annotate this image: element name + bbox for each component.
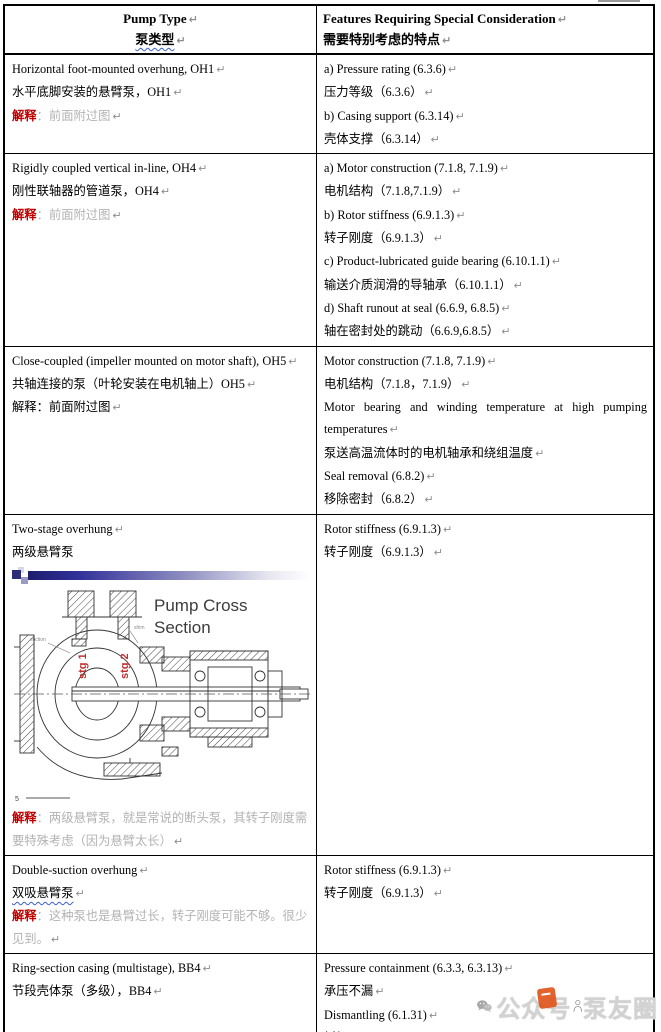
line-text: 水平底脚安装的悬臂泵，OH1 [12, 85, 171, 99]
paragraph-mark-icon: ↵ [112, 110, 121, 123]
text-line: c) Product-lubricated guide bearing (6.1… [324, 250, 647, 273]
text-line: 电机结构（7.1.8，7.1.9）↵ [324, 373, 647, 396]
paragraph-mark-icon: ↵ [115, 523, 124, 536]
text-line: 泵送高温流体时的电机轴承和绕组温度↵ [324, 442, 647, 465]
text-line: a) Pressure rating (6.3.6)↵ [324, 58, 647, 81]
line-text: 两级悬臂泵 [12, 545, 74, 559]
line-text: a) Motor construction (7.1.8, 7.1.9) [324, 161, 498, 175]
line-text: 双吸悬臂泵 [12, 886, 74, 900]
gradient-bar [28, 571, 310, 580]
text-line: 解释：前面附过图↵ [12, 105, 310, 128]
svg-text:suction: suction [30, 637, 46, 643]
text-line: Rotor stiffness (6.9.1.3)↵ [324, 518, 647, 541]
paragraph-mark-icon: ↵ [429, 1009, 438, 1022]
text-line: a) Motor construction (7.1.8, 7.1.9)↵ [324, 157, 647, 180]
text-line: Two-stage overhung↵ [12, 518, 310, 541]
pump-type-cell: Horizontal foot-mounted overhung, OH1↵水平… [5, 55, 317, 153]
text-line: 拆解↵ [324, 1027, 647, 1032]
line-text: 电机结构（7.1.8,7.1.9） [324, 184, 450, 198]
paragraph-mark-icon: ↵ [452, 185, 461, 198]
paragraph-mark-icon: ↵ [434, 546, 443, 559]
figure-area: suction shim stg 1 stg 2 5 Pump Cross Se… [12, 587, 312, 805]
line-text: 移除密封（6.8.2） [324, 492, 422, 506]
paragraph-mark-icon: ↵ [500, 162, 509, 175]
paragraph-mark-icon: ↵ [247, 378, 256, 391]
line-text: 共轴连接的泵（叶轮安装在电机轴上）OH5 [12, 377, 245, 391]
text-line: Seal removal (6.8.2)↵ [324, 465, 647, 488]
pump-features-table: Pump Type↵ 泵类型↵ Features Requiring Speci… [3, 4, 655, 1032]
paragraph-mark-icon: ↵ [504, 962, 513, 975]
line-text: 刚性联轴器的管道泵，OH4 [12, 184, 159, 198]
line-text: Ring-section casing (multistage), BB4 [12, 961, 201, 975]
paragraph-mark-icon: ↵ [424, 86, 433, 99]
line-text: 泵送高温流体时的电机轴承和绕组温度 [324, 446, 533, 460]
document-page: Pump Type↵ 泵类型↵ Features Requiring Speci… [0, 0, 661, 1032]
features-cell: a) Motor construction (7.1.8, 7.1.9)↵电机结… [317, 154, 653, 345]
line-text: Two-stage overhung [12, 522, 113, 536]
pump-type-cell: Rigidly coupled vertical in-line, OH4↵刚性… [5, 154, 317, 345]
features-cell: Pressure containment (6.3.3, 6.3.13)↵承压不… [317, 954, 653, 1032]
paragraph-mark-icon: ↵ [514, 279, 523, 292]
pump-figure: suction shim stg 1 stg 2 5 Pump Cross Se… [12, 567, 312, 805]
paragraph-mark-icon: ↵ [443, 864, 452, 877]
text-line: 水平底脚安装的悬臂泵，OH1↵ [12, 81, 310, 104]
text-line: 输送介质润滑的导轴承（6.10.1.1）↵ [324, 274, 647, 297]
line-text: Dismantling (6.1.31) [324, 1008, 427, 1022]
line-text: Rigidly coupled vertical in-line, OH4 [12, 161, 196, 175]
paragraph-mark-icon: ↵ [434, 887, 443, 900]
text-line: Motor bearing and winding temperature at… [324, 396, 647, 442]
explanation-label: 解释 [12, 811, 37, 825]
header-pump-type-en: Pump Type↵ [11, 9, 310, 30]
paragraph-mark-icon: ↵ [501, 325, 510, 338]
stage-2-label: stg 2 [119, 654, 131, 680]
paragraph-mark-icon: ↵ [375, 985, 384, 998]
paragraph-mark-icon: ↵ [426, 470, 435, 483]
table-row: Horizontal foot-mounted overhung, OH1↵水平… [5, 55, 653, 154]
line-text: d) Shaft runout at seal (6.6.9, 6.8.5) [324, 301, 499, 315]
line-text: Pressure containment (6.3.3, 6.3.13) [324, 961, 502, 975]
header-features-en: Features Requiring Special Consideration… [323, 9, 647, 30]
paragraph-mark-icon: ↵ [112, 209, 121, 222]
text-line: 解释：这种泵也是悬臂过长，转子刚度可能不够。很少见到。↵ [12, 905, 310, 951]
pump-type-cell: Close-coupled (impeller mounted on motor… [5, 347, 317, 514]
line-text: c) Product-lubricated guide bearing (6.1… [324, 254, 550, 268]
table-row: Two-stage overhung↵两级悬臂泵 [5, 515, 653, 856]
paragraph-mark-icon: ↵ [176, 34, 185, 47]
features-cell: Rotor stiffness (6.9.1.3)↵转子刚度（6.9.1.3）↵ [317, 515, 653, 855]
page-edge-mark [598, 0, 640, 2]
text-line: 轴在密封处的跳动（6.6.9,6.8.5）↵ [324, 320, 647, 343]
pump-type-cell: Double-suction overhung↵双吸悬臂泵↵解释：这种泵也是悬臂… [5, 856, 317, 953]
explanation-label: 解释 [12, 208, 37, 222]
text-line: 刚性联轴器的管道泵，OH4↵ [12, 180, 310, 203]
text-line: 解释：两级悬臂泵，就是常说的断头泵，其转子刚度需要特殊考虑（因为悬臂太长）↵ [12, 807, 310, 853]
line-text: 输送介质润滑的导轴承（6.10.1.1） [324, 278, 512, 292]
table-row: Ring-section casing (multistage), BB4↵节段… [5, 954, 653, 1032]
line-text: 转子刚度（6.9.1.3） [324, 886, 432, 900]
line-text: Double-suction overhung [12, 863, 137, 877]
text-line: b) Rotor stiffness (6.9.1.3)↵ [324, 204, 647, 227]
text-line: 转子刚度（6.9.1.3）↵ [324, 541, 647, 564]
features-cell: Motor construction (7.1.8, 7.1.9)↵电机结构（7… [317, 347, 653, 514]
text-line: 承压不漏↵ [324, 980, 647, 1003]
features-cell: a) Pressure rating (6.3.6)↵压力等级（6.3.6）↵b… [317, 55, 653, 153]
text-line: 两级悬臂泵 [12, 541, 310, 563]
explanation-label: 解释 [12, 109, 37, 123]
line-text: Rotor stiffness (6.9.1.3) [324, 522, 441, 536]
line-text: 压力等级（6.3.6） [324, 85, 422, 99]
line-text: Horizontal foot-mounted overhung, OH1 [12, 62, 214, 76]
text-line: 双吸悬臂泵↵ [12, 882, 310, 905]
text-line: Rotor stiffness (6.9.1.3)↵ [324, 859, 647, 882]
paragraph-mark-icon: ↵ [431, 133, 440, 146]
text-line: Motor construction (7.1.8, 7.1.9)↵ [324, 350, 647, 373]
paragraph-mark-icon: ↵ [173, 86, 182, 99]
scale-note: 5 [15, 796, 19, 803]
paragraph-mark-icon: ↵ [455, 110, 464, 123]
table-body: Horizontal foot-mounted overhung, OH1↵水平… [5, 55, 653, 1032]
paragraph-mark-icon: ↵ [424, 493, 433, 506]
pump-type-cell: Two-stage overhung↵两级悬臂泵 [5, 515, 317, 855]
paragraph-mark-icon: ↵ [448, 63, 457, 76]
text-line: 转子刚度（6.9.1.3）↵ [324, 227, 647, 250]
text-line: Rigidly coupled vertical in-line, OH4↵ [12, 157, 310, 180]
paragraph-mark-icon: ↵ [112, 401, 121, 414]
table-row: Close-coupled (impeller mounted on motor… [5, 347, 653, 515]
paragraph-mark-icon: ↵ [76, 887, 85, 900]
paragraph-mark-icon: ↵ [456, 209, 465, 222]
paragraph-mark-icon: ↵ [161, 185, 170, 198]
line-text: Rotor stiffness (6.9.1.3) [324, 863, 441, 877]
table-row: Rigidly coupled vertical in-line, OH4↵刚性… [5, 154, 653, 346]
text-line: Ring-section casing (multistage), BB4↵ [12, 957, 310, 980]
table-header-row: Pump Type↵ 泵类型↵ Features Requiring Speci… [5, 6, 653, 55]
header-features-zh: 需要特别考虑的特点↵ [323, 30, 647, 51]
line-text: 解释：前面附过图 [12, 400, 110, 414]
paragraph-mark-icon: ↵ [139, 864, 148, 877]
explanation-label: 解释 [12, 909, 37, 923]
text-line: 共轴连接的泵（叶轮安装在电机轴上）OH5↵ [12, 373, 310, 396]
paragraph-mark-icon: ↵ [501, 302, 510, 315]
paragraph-mark-icon: ↵ [552, 255, 561, 268]
accent-square-icon [12, 570, 21, 579]
text-line: Double-suction overhung↵ [12, 859, 310, 882]
line-text: 电机结构（7.1.8，7.1.9） [324, 377, 459, 391]
text-line: Horizontal foot-mounted overhung, OH1↵ [12, 58, 310, 81]
text-line: Dismantling (6.1.31)↵ [324, 1004, 647, 1027]
line-text: 转子刚度（6.9.1.3） [324, 231, 432, 245]
line-text: Close-coupled (impeller mounted on motor… [12, 354, 286, 368]
line-text: Motor construction (7.1.8, 7.1.9) [324, 354, 485, 368]
table-row: Double-suction overhung↵双吸悬臂泵↵解释：这种泵也是悬臂… [5, 856, 653, 954]
paragraph-mark-icon: ↵ [288, 355, 297, 368]
paragraph-mark-icon: ↵ [535, 447, 544, 460]
line-text: 壳体支撑（6.3.14） [324, 132, 429, 146]
line-text: 节段壳体泵（多级），BB4 [12, 984, 151, 998]
text-line: 转子刚度（6.9.1.3）↵ [324, 882, 647, 905]
paragraph-mark-icon: ↵ [216, 63, 225, 76]
header-cell-features: Features Requiring Special Consideration… [317, 6, 653, 53]
explanation-text: ：前面附过图 [37, 109, 111, 123]
paragraph-mark-icon: ↵ [189, 13, 198, 26]
text-line: d) Shaft runout at seal (6.6.9, 6.8.5)↵ [324, 297, 647, 320]
line-text: Seal removal (6.8.2) [324, 469, 424, 483]
text-line: Close-coupled (impeller mounted on motor… [12, 350, 310, 373]
paragraph-mark-icon: ↵ [203, 962, 212, 975]
paragraph-mark-icon: ↵ [51, 933, 60, 946]
paragraph-mark-icon: ↵ [443, 523, 452, 536]
figure-caption: Pump Cross Section [154, 595, 264, 639]
paragraph-mark-icon: ↵ [198, 162, 207, 175]
paragraph-mark-icon: ↵ [487, 355, 496, 368]
text-line: 解释：前面附过图↵ [12, 396, 310, 419]
text-line: b) Casing support (6.3.14)↵ [324, 105, 647, 128]
line-text: Motor bearing and winding temperature at… [324, 400, 647, 436]
header-pump-type-zh: 泵类型↵ [11, 30, 310, 51]
paragraph-mark-icon: ↵ [390, 423, 399, 436]
explanation-text: ：前面附过图 [37, 208, 111, 222]
line-text: 承压不漏 [324, 984, 373, 998]
explanation-text: ：两级悬臂泵，就是常说的断头泵，其转子刚度需要特殊考虑（因为悬臂太长） [12, 811, 307, 847]
paragraph-mark-icon: ↵ [442, 34, 451, 47]
line-text: 轴在密封处的跳动（6.6.9,6.8.5） [324, 324, 499, 338]
paragraph-mark-icon: ↵ [461, 378, 470, 391]
text-line: 压力等级（6.3.6）↵ [324, 81, 647, 104]
slide-accent-bar [12, 567, 312, 587]
text-line: 节段壳体泵（多级），BB4↵ [12, 980, 310, 1003]
line-text: a) Pressure rating (6.3.6) [324, 62, 446, 76]
header-cell-pump-type: Pump Type↵ 泵类型↵ [5, 6, 317, 53]
line-text: b) Rotor stiffness (6.9.1.3) [324, 208, 454, 222]
line-text: 转子刚度（6.9.1.3） [324, 545, 432, 559]
text-line: 电机结构（7.1.8,7.1.9）↵ [324, 180, 647, 203]
text-line: 壳体支撑（6.3.14）↵ [324, 128, 647, 151]
text-line: 解释：前面附过图↵ [12, 204, 310, 227]
pump-type-cell: Ring-section casing (multistage), BB4↵节段… [5, 954, 317, 1032]
text-line: Pressure containment (6.3.3, 6.3.13)↵ [324, 957, 647, 980]
paragraph-mark-icon: ↵ [434, 232, 443, 245]
features-cell: Rotor stiffness (6.9.1.3)↵转子刚度（6.9.1.3）↵ [317, 856, 653, 953]
line-text: b) Casing support (6.3.14) [324, 109, 453, 123]
paragraph-mark-icon: ↵ [558, 13, 567, 26]
svg-text:shim: shim [134, 625, 145, 631]
paragraph-mark-icon: ↵ [153, 985, 162, 998]
paragraph-mark-icon: ↵ [174, 835, 183, 848]
stage-1-label: stg 1 [77, 654, 89, 680]
text-line: 移除密封（6.8.2）↵ [324, 488, 647, 511]
accent-square-icon [21, 577, 28, 584]
